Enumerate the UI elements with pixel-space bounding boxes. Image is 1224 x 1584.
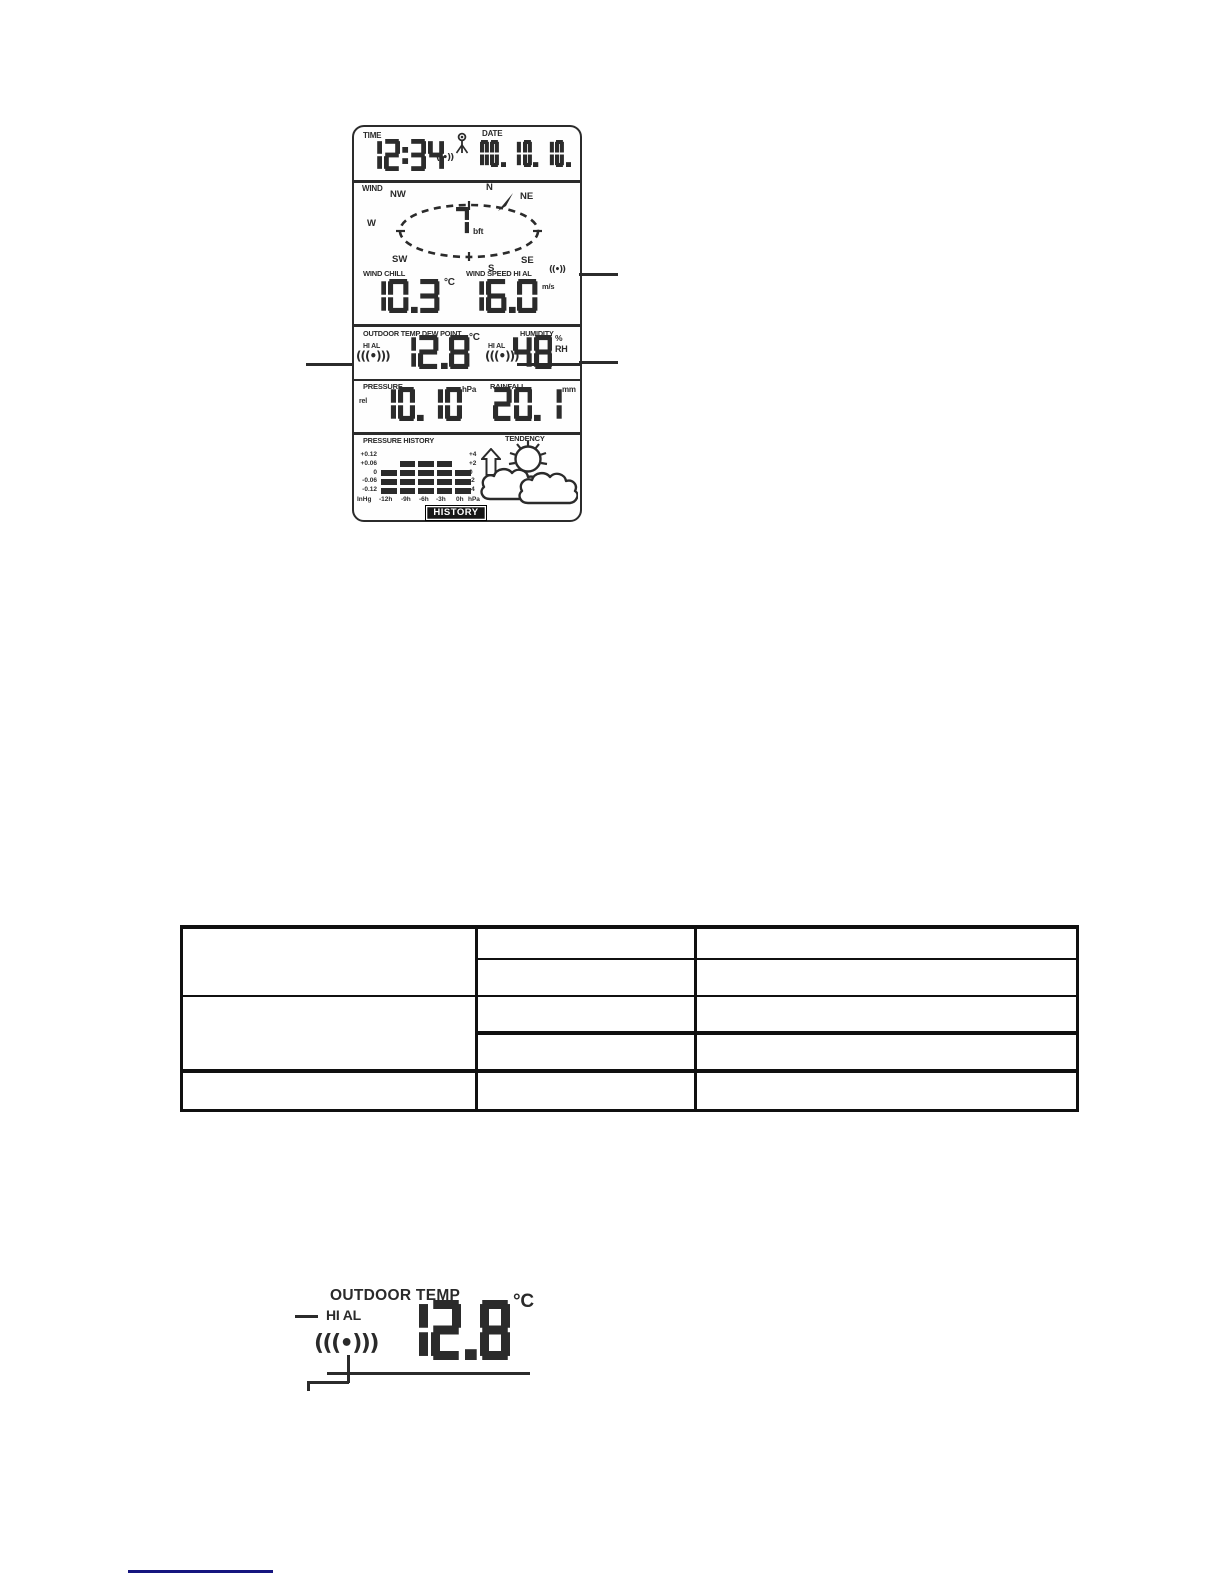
table-row	[182, 927, 1078, 959]
humidity-signal-icon: (((•)))	[485, 350, 519, 362]
odf-underline	[327, 1372, 530, 1375]
odf-callout-dash	[295, 1315, 318, 1318]
wind-direction-value	[455, 207, 469, 235]
wind-label: WIND	[362, 185, 383, 193]
odf-callout-vertical	[347, 1355, 350, 1383]
wind-chill-label: WIND CHILL	[363, 270, 405, 278]
odf-value	[398, 1300, 510, 1360]
hist-bar	[418, 488, 434, 494]
lcd-section-divider	[354, 324, 580, 327]
wind-speed-value	[464, 279, 538, 313]
hist-left-axis-label: +0.06	[356, 461, 377, 468]
hist-bar	[455, 488, 471, 494]
date-value	[480, 140, 571, 167]
lcd-section-divider	[354, 432, 580, 435]
hist-bar	[400, 488, 416, 494]
hist-x-axis-label: -9h	[401, 497, 411, 504]
hist-bar	[400, 461, 416, 467]
hist-x-axis-label: -6h	[419, 497, 429, 504]
table-cell	[696, 927, 1078, 959]
table-cell	[696, 1071, 1078, 1110]
hist-left-axis-label: +0.12	[356, 452, 377, 459]
dir-se: SE	[521, 256, 534, 266]
hist-bar	[437, 488, 453, 494]
outdoor-temp-unit: °C	[469, 333, 480, 343]
table-cell	[182, 1071, 477, 1110]
table-row	[182, 996, 1078, 1033]
hist-bar	[381, 488, 397, 494]
hist-x-axis-label: 0h	[456, 497, 464, 504]
hist-left-axis-label: -0.06	[356, 478, 377, 485]
rainfall-value	[493, 387, 562, 421]
antenna-icon	[452, 131, 472, 155]
table-cell	[182, 927, 477, 996]
hist-bar	[437, 470, 453, 476]
outdoor-signal-icon: (((•)))	[356, 350, 390, 362]
humidity-unit-rh: RH	[555, 345, 568, 354]
pressure-value	[379, 387, 462, 421]
time-signal-icon: ((•))	[436, 154, 453, 163]
pressure-history-label: PRESSURE HISTORY	[363, 437, 434, 444]
hist-bar	[437, 461, 453, 467]
callout-line-wind-speed	[579, 273, 618, 276]
callout-line-humidity	[579, 361, 618, 364]
date-label: DATE	[482, 130, 502, 138]
pressure-rel-label: rel	[359, 398, 367, 405]
compass-needle-icon	[498, 193, 513, 211]
dir-n: N	[486, 183, 493, 193]
wind-direction-unit: bft	[473, 227, 483, 236]
dir-ne: NE	[520, 192, 533, 202]
table-cell	[477, 1033, 696, 1071]
table-cell	[477, 996, 696, 1033]
manual-page: { "figure_lcd": { "time": {"label": "TIM…	[0, 0, 1224, 1584]
dir-nw: NW	[390, 190, 406, 200]
history-button: HISTORY	[425, 505, 487, 521]
hist-bar	[418, 461, 434, 467]
table-cell	[696, 1033, 1078, 1071]
odf-callout-tick	[307, 1381, 310, 1391]
humidity-unit-percent: %	[555, 334, 562, 343]
pressure-history-chart: +0.12+0.060-0.06-0.12+4+20-2-4InHg-12h-9…	[356, 453, 486, 503]
hist-bar	[381, 479, 397, 485]
dir-w: W	[367, 219, 376, 229]
lcd-section-divider	[354, 379, 580, 381]
hist-bar	[381, 470, 397, 476]
time-value	[366, 139, 444, 171]
wind-chill-unit: °C	[444, 278, 455, 288]
wind-speed-label: WIND SPEED HI AL	[466, 270, 532, 278]
odf-callout-horizontal	[307, 1381, 349, 1384]
wind-speed-signal-icon: ((•))	[549, 266, 565, 275]
wind-speed-unit: m/s	[542, 283, 554, 291]
hist-bar	[437, 479, 453, 485]
callout-line-outdoor	[306, 363, 353, 366]
lcd-section-divider	[354, 180, 580, 183]
odf-unit: °C	[513, 1292, 534, 1311]
dir-sw: SW	[392, 255, 407, 265]
hist-x-axis-label: InHg	[357, 497, 371, 504]
table-cell	[696, 959, 1078, 996]
hist-bar	[400, 470, 416, 476]
table-cell	[477, 959, 696, 996]
hist-bar	[418, 479, 434, 485]
hist-left-axis-label: -0.12	[356, 487, 377, 494]
hist-left-axis-label: 0	[356, 470, 377, 477]
hist-x-axis-label: -3h	[436, 497, 446, 504]
compass-ellipse	[400, 205, 538, 257]
sun-clouds-icon	[478, 439, 578, 505]
footer-link-underline[interactable]	[128, 1570, 273, 1573]
wind-chill-value	[366, 279, 440, 313]
odf-signal-icon: (((•)))	[314, 1333, 378, 1355]
hist-bar	[455, 479, 471, 485]
weather-station-lcd-figure: TIME ((•)) DATE WIND NW N NE W SW S SE b…	[352, 125, 582, 522]
odf-hi-al-label: HI AL	[326, 1308, 361, 1322]
hist-bar	[455, 470, 471, 476]
table-cell	[696, 996, 1078, 1033]
rainfall-unit: mm	[562, 386, 576, 394]
hist-x-axis-label: -12h	[379, 497, 392, 504]
hist-bar	[418, 470, 434, 476]
table-cell	[182, 996, 477, 1071]
hist-bar	[400, 479, 416, 485]
outdoor-temp-value	[396, 335, 470, 369]
table-row	[182, 1071, 1078, 1110]
table-cell	[477, 1071, 696, 1110]
spec-table	[180, 925, 1079, 1112]
pressure-unit: hPa	[462, 386, 476, 394]
table-cell	[477, 927, 696, 959]
